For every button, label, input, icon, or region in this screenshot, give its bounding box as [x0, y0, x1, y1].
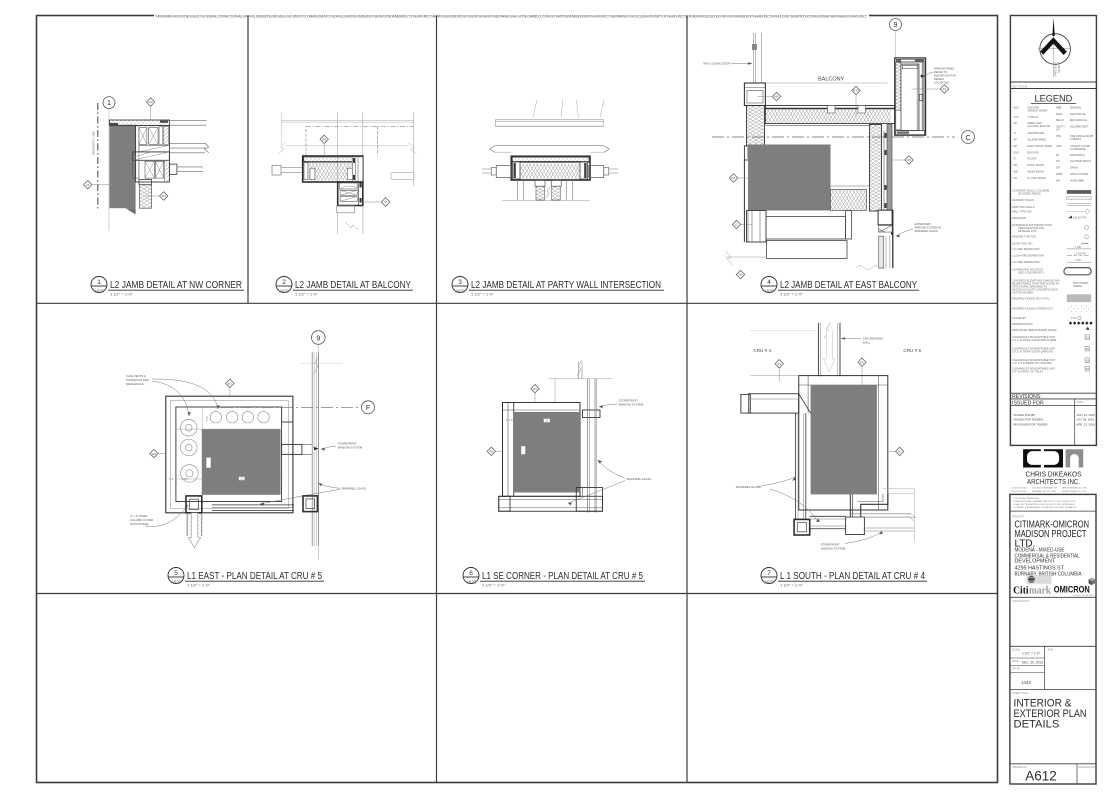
svg-text:7 1/4": 7 1/4"	[182, 478, 189, 481]
svg-text:ELEC: ELEC	[1056, 112, 1063, 116]
svg-text:SPANDREL GLASS: SPANDREL GLASS	[626, 477, 651, 481]
svg-text:L2 JAMB DETAIL AT PARTY WALL I: L2 JAMB DETAIL AT PARTY WALL INTERSECTIO…	[471, 280, 661, 291]
svg-text:DETAILED LIST): DETAILED LIST)	[1018, 230, 1037, 233]
svg-text:DRAWINGS SHALL REMAIN THE USE: DRAWINGS SHALL REMAIN THE USE OF THIS WO…	[1014, 500, 1077, 503]
svg-text:C1: C1	[735, 223, 739, 227]
svg-text:2 HR: 2 HR	[1075, 259, 1081, 262]
svg-text:PD: PD	[1056, 159, 1060, 163]
svg-text:SYMMETRY: SYMMETRY	[1012, 317, 1026, 320]
svg-text:EP: EP	[1014, 144, 1018, 148]
svg-text:7: 7	[767, 570, 771, 577]
svg-text:1 1/2" = 1'-0": 1 1/2" = 1'-0"	[780, 583, 803, 588]
svg-text:A620: A620	[455, 289, 465, 294]
svg-text:UP FOR ALIGNED: UP FOR ALIGNED	[1012, 292, 1033, 295]
svg-text:BASIN(S): BASIN(S)	[1070, 105, 1081, 109]
svg-text:GRADE: GRADE	[1073, 285, 1082, 288]
svg-text:ELECTRICAL PANEL: ELECTRICAL PANEL	[1028, 144, 1053, 148]
svg-text:W/D: W/D	[1014, 105, 1019, 109]
svg-text:KYO: KYO	[1071, 317, 1076, 320]
svg-text:W2: W2	[148, 100, 153, 104]
svg-text:ARCHITECTS INC.: ARCHITECTS INC.	[1027, 477, 1080, 486]
svg-text:CABINET: CABINET	[1070, 137, 1082, 141]
svg-text:AWNING WNDW: AWNING WNDW	[1028, 108, 1048, 112]
svg-text:L2 JAMB DETAIL AT EAST BALCONY: L2 JAMB DETAIL AT EAST BALCONY	[780, 280, 917, 291]
svg-text:OTHERWISE: OTHERWISE	[1070, 147, 1086, 151]
svg-text:2'-7 3/4": 2'-7 3/4"	[506, 419, 515, 422]
svg-text:W4: W4	[738, 273, 743, 277]
svg-text:VINYL SLIDING DOOR: VINYL SLIDING DOOR	[703, 62, 730, 66]
svg-text:WB: WB	[1014, 169, 1018, 173]
svg-text:TYPICAL: TYPICAL	[1028, 115, 1039, 119]
svg-text:1 HR: 1 HR	[1075, 246, 1081, 249]
svg-text:mark: mark	[1029, 585, 1052, 597]
svg-text:100.00 TOS: 100.00 TOS	[1073, 217, 1087, 220]
svg-text:(SEE CODE REPORT): (SEE CODE REPORT)	[1018, 272, 1044, 275]
svg-text:AP: AP	[1014, 138, 1018, 142]
svg-text:330-3665 KINGSWAY DR: 330-3665 KINGSWAY DR	[1032, 487, 1058, 490]
svg-text:W2: W2	[860, 360, 865, 364]
svg-text:INFO@DIKEAKOS.COM: INFO@DIKEAKOS.COM	[1062, 487, 1087, 490]
svg-text:MASONRY WALLS: MASONRY WALLS	[1012, 199, 1034, 202]
svg-text:OCT 28, 2015: OCT 28, 2015	[1077, 418, 1095, 422]
svg-text:SCALE: SCALE	[1012, 649, 1021, 652]
svg-text:L2 JAMB DETAIL AT BALCONY: L2 JAMB DETAIL AT BALCONY	[295, 280, 411, 291]
svg-text:BALCONY: BALCONY	[818, 77, 845, 83]
svg-text:DROPPED CEILING (OTHER A.F.F.): DROPPED CEILING (OTHER A.F.F.)	[1012, 308, 1053, 311]
svg-text:DRAIN: DRAIN	[1070, 166, 1078, 170]
svg-text:W5: W5	[489, 450, 494, 454]
svg-text:6: 6	[469, 570, 473, 577]
svg-text:JULY 14, 2015: JULY 14, 2015	[1077, 413, 1096, 417]
svg-text:REVEAL: REVEAL	[934, 77, 945, 81]
svg-text:3: 3	[458, 279, 462, 286]
svg-text:PARTITION WALLS: PARTITION WALLS	[1012, 206, 1035, 209]
svg-text:W1: W1	[533, 387, 538, 391]
svg-text:T 604 261 0700: T 604 261 0700	[1011, 488, 1027, 490]
svg-text:HBB: HBB	[1056, 105, 1062, 109]
svg-text:BURNABY BC V5C 6N3: BURNABY BC V5C 6N3	[1032, 490, 1056, 493]
svg-text:SPANDREL GLASS: SPANDREL GLASS	[736, 485, 761, 489]
svg-text:WASH BASIN: WASH BASIN	[1028, 169, 1044, 173]
svg-text:CENTERLINE: CENTERLINE	[1028, 131, 1045, 135]
svg-text:WINDOW SYSTEM: WINDOW SYSTEM	[619, 403, 644, 407]
svg-text:ELEVATION: ELEVATION	[1012, 217, 1026, 220]
svg-text:DEVELOPMENT: DEVELOPMENT	[1015, 559, 1056, 565]
svg-text:1 1/2" = 1'-0": 1 1/2" = 1'-0"	[1022, 652, 1040, 656]
svg-text:SHEET TITLE: SHEET TITLE	[1013, 692, 1029, 695]
svg-text:W9: W9	[907, 158, 912, 162]
svg-text:WWW.DIKEAKOS.COM: WWW.DIKEAKOS.COM	[1062, 490, 1086, 493]
svg-text:W8: W8	[322, 138, 327, 142]
svg-text:W4: W4	[162, 194, 167, 198]
svg-text:MECHANICAL: MECHANICAL	[126, 382, 145, 386]
svg-text:ENS: ENS	[1014, 150, 1020, 154]
svg-text:5: 5	[174, 570, 178, 577]
svg-text:FL.(GR) DRAIN: FL.(GR) DRAIN	[1028, 176, 1046, 180]
svg-text:R10: R10	[853, 89, 859, 93]
svg-text:A620: A620	[466, 580, 476, 585]
svg-text:C1: C1	[86, 183, 90, 187]
svg-text:EXTERIOR/IF: EXTERIOR/IF	[915, 222, 932, 226]
svg-text:RD: RD	[1014, 163, 1018, 167]
svg-text:1-hr FIRE SEPARATION: 1-hr FIRE SEPARATION	[1012, 248, 1039, 251]
svg-text:REFER TO: REFER TO	[934, 70, 947, 74]
svg-text:NORTH: NORTH	[1057, 62, 1061, 73]
svg-text:A LEDCOR GROUP CO.: A LEDCOR GROUP CO.	[1073, 594, 1098, 597]
svg-text:2' X 2' AT ENTRY DOOR SWING WI: 2' X 2' AT ENTRY DOOR SWING WIDE	[1012, 339, 1056, 342]
svg-text:D####: D####	[1081, 242, 1089, 245]
svg-text:WALL: WALL	[863, 341, 871, 345]
svg-text:Citi: Citi	[1013, 585, 1029, 597]
svg-text:1 1/2-hr FIRE SEPARATION: 1 1/2-hr FIRE SEPARATION	[1012, 255, 1044, 258]
svg-text:WI: WI	[1056, 153, 1059, 157]
svg-text:1 1/2" = 1'-0": 1 1/2" = 1'-0"	[471, 292, 494, 297]
svg-text:1443: 1443	[1021, 680, 1031, 685]
svg-text:HOSE BIBB: HOSE BIBB	[1070, 178, 1084, 182]
svg-text:PROJECT: PROJECT	[1013, 515, 1025, 518]
svg-text:WINDOW TYPE TAG: WINDOW TYPE TAG	[1012, 236, 1036, 239]
svg-text:ALUMIN PANEL: ALUMIN PANEL	[1028, 138, 1047, 142]
svg-text:2'-0" X 4' IN FRONT OF LAVATOR: 2'-0" X 4' IN FRONT OF LAVATORY	[1012, 362, 1052, 365]
svg-text:DOOR TYPE TAG: DOOR TYPE TAG	[1012, 242, 1032, 245]
svg-text:L1 SE CORNER - PLAN DETAIL AT: L1 SE CORNER - PLAN DETAIL AT CRU # 5	[482, 571, 643, 582]
svg-text:ELECTRICAL: ELECTRICAL	[1070, 112, 1087, 116]
svg-text:1 1/2" = 1'-0": 1 1/2" = 1'-0"	[110, 292, 133, 297]
svg-text:MECHANICAL: MECHANICAL	[1070, 118, 1088, 122]
svg-text:HP: HP	[1014, 121, 1018, 125]
svg-text:CRU # 4: CRU # 4	[753, 348, 771, 353]
svg-text:SEAL: SEAL	[1048, 649, 1055, 652]
svg-text:LEGEND: LEGEND	[1035, 94, 1073, 104]
svg-text:REVISION NO.: REVISION NO.	[1079, 766, 1096, 769]
svg-text:PLANTER DRAIN: PLANTER DRAIN	[1070, 159, 1091, 163]
svg-text:DEC. 20, 2013: DEC. 20, 2013	[1022, 661, 1043, 665]
svg-text:1'-6": 1'-6"	[169, 478, 174, 481]
svg-text:FD: FD	[1014, 176, 1018, 180]
svg-text:A620: A620	[171, 580, 181, 585]
svg-text:1: 1	[107, 100, 111, 107]
svg-text:SPANDREL GLASS: SPANDREL GLASS	[341, 486, 366, 490]
svg-text:2'-6" IN FRONT OF TOILET: 2'-6" IN FRONT OF TOILET	[1012, 371, 1043, 374]
svg-text:WINDOW PANEL: WINDOW PANEL	[934, 67, 955, 71]
svg-text:WINDOW SYSTEM: WINDOW SYSTEM	[821, 547, 846, 551]
svg-text:L 1 SOUTH - PLAN DETAIL AT CRU: L 1 SOUTH - PLAN DETAIL AT CRU # 4	[780, 571, 925, 582]
svg-text:ISSUED FOR BP: ISSUED FOR BP	[1014, 413, 1036, 417]
svg-text:WINDOW SYSTEM: WINDOW SYSTEM	[338, 446, 363, 450]
svg-text:A620: A620	[279, 289, 289, 294]
svg-text:PROPERTY LINE: PROPERTY LINE	[92, 131, 96, 155]
svg-text:DR: DR	[1056, 166, 1060, 170]
svg-text:W1: W1	[777, 362, 782, 366]
svg-text:& MAY NOT BE REPRODUCED WITHOU: & MAY NOT BE REPRODUCED WITHOUT THE EXPR…	[1014, 503, 1076, 506]
svg-text:9: 9	[894, 22, 898, 29]
svg-text:A620: A620	[94, 289, 104, 294]
svg-text:4: 4	[767, 279, 771, 286]
svg-text:P1: P1	[943, 87, 947, 91]
svg-text:WINDOW SYSTEM W/: WINDOW SYSTEM W/	[915, 226, 942, 230]
svg-text:2: 2	[282, 279, 286, 286]
svg-text:THIS DRAWING MUST NOT BE SCALE: THIS DRAWING MUST NOT BE SCALED. THE GEN…	[155, 15, 867, 19]
svg-text:CL: CL	[1014, 131, 1018, 135]
svg-text:WINDOW(S): WINDOW(S)	[1070, 153, 1085, 157]
svg-text:W1: W1	[898, 450, 903, 454]
svg-text:PSC: PSC	[1056, 134, 1061, 138]
svg-text:HEAT/NOISE (SEE EXTERIOR NOISE: HEAT/NOISE (SEE EXTERIOR NOISE)	[1012, 329, 1056, 332]
svg-text:A620: A620	[764, 289, 774, 294]
svg-text:MECH: MECH	[1056, 118, 1064, 122]
svg-text:1 1/2" = 1'-0": 1 1/2" = 1'-0"	[482, 583, 505, 588]
svg-text:(AS REQ) ELECTR.: (AS REQ) ELECTR.	[1028, 124, 1051, 128]
svg-text:A620: A620	[764, 580, 774, 585]
svg-text:CONSENT & AGREEMENT IN WRITING: CONSENT & AGREEMENT IN WRITING OF CHRIS …	[1014, 506, 1077, 509]
svg-text:KEY PLAN: KEY PLAN	[1012, 84, 1027, 88]
svg-text:1: 1	[97, 279, 101, 286]
svg-text:APR. 13, 2016: APR. 13, 2016	[1077, 422, 1096, 426]
svg-text:CRU # 5: CRU # 5	[903, 348, 921, 353]
svg-text:HB: HB	[1056, 178, 1060, 182]
svg-text:ELEVATIONS FOR: ELEVATIONS FOR	[934, 74, 956, 78]
svg-text:DR. BY: DR. BY	[1012, 667, 1021, 670]
svg-text:1.5 HOUR: 1.5 HOUR	[1074, 253, 1086, 256]
svg-text:SQUARE FEET: SQUARE FEET	[1070, 124, 1089, 128]
svg-text:W1: W1	[731, 176, 736, 180]
svg-text:(FLOODED AREAS): (FLOODED AREAS)	[1018, 193, 1041, 196]
svg-text:UNO: UNO	[1056, 144, 1062, 148]
svg-text:L1 EAST - PLAN DETAIL AT CRU #: L1 EAST - PLAN DETAIL AT CRU # 5	[187, 571, 322, 582]
svg-text:DETAILS: DETAILS	[1014, 718, 1060, 730]
svg-text:SPANDREL GLASS: SPANDREL GLASS	[915, 229, 938, 233]
svg-text:ISSUED FOR TENDER: ISSUED FOR TENDER	[1014, 418, 1043, 422]
svg-text:WDW SYSTEM: WDW SYSTEM	[1070, 172, 1088, 176]
svg-text:2' X 2' AT ENTRY DOOR SWING AS: 2' X 2' AT ENTRY DOOR SWING AS	[1012, 350, 1053, 353]
svg-text:DATE: DATE	[1077, 401, 1084, 404]
svg-text:F 604 261 0267: F 604 261 0267	[1011, 491, 1027, 493]
svg-text:DROPPED CEILING (8'-0" A.F.F.): DROPPED CEILING (8'-0" A.F.F.)	[1012, 297, 1049, 300]
svg-text:1 1/2" = 1'-0": 1 1/2" = 1'-0"	[295, 292, 318, 297]
svg-text:1 1/2" = 1'-0": 1 1/2" = 1'-0"	[780, 292, 803, 297]
svg-text:W1: W1	[228, 382, 233, 386]
svg-text:WALL TYPE TAG: WALL TYPE TAG	[1012, 211, 1031, 214]
svg-text:W5: W5	[152, 452, 157, 456]
svg-text:OMICRON: OMICRON	[1054, 585, 1090, 595]
svg-text:W6: W6	[774, 95, 779, 99]
svg-text:1 1/2" = 1'-0": 1 1/2" = 1'-0"	[187, 583, 210, 588]
svg-text:ENSUITE: ENSUITE	[1028, 150, 1040, 154]
svg-text:5'-2": 5'-2"	[206, 416, 209, 421]
svg-text:9: 9	[316, 335, 320, 342]
svg-text:WATER/CASTING: WATER/CASTING	[1012, 323, 1033, 326]
svg-text:WWS: WWS	[1056, 172, 1063, 176]
svg-text:S.F.: S.F.	[1056, 127, 1061, 131]
svg-text:2-hr FIRE SEPARATION: 2-hr FIRE SEPARATION	[1012, 261, 1039, 264]
svg-text:W: W	[384, 200, 387, 204]
svg-text:A612: A612	[1025, 769, 1057, 784]
svg-text:L2 JAMB DETAIL AT NW CORNER: L2 JAMB DETAIL AT NW CORNER	[110, 280, 242, 291]
svg-text:CONSULTANT: CONSULTANT	[1013, 600, 1030, 603]
svg-text:ROOF DRAIN: ROOF DRAIN	[1028, 163, 1044, 167]
svg-text:FLOOR: FLOOR	[1028, 156, 1037, 160]
svg-text:F: F	[366, 405, 370, 412]
svg-text:STRUCTURAL: STRUCTURAL	[130, 522, 149, 526]
svg-text:COPYRIGHT RESERVED.: COPYRIGHT RESERVED.	[1014, 498, 1041, 500]
svg-text:DATE: DATE	[1012, 660, 1019, 663]
svg-text:RE-ISSUED FOR TENDER: RE-ISSUED FOR TENDER	[1014, 422, 1048, 426]
svg-text:C: C	[965, 135, 970, 142]
svg-text:LOCATIONS: LOCATIONS	[934, 81, 949, 85]
svg-text:TYP: TYP	[1014, 115, 1019, 119]
